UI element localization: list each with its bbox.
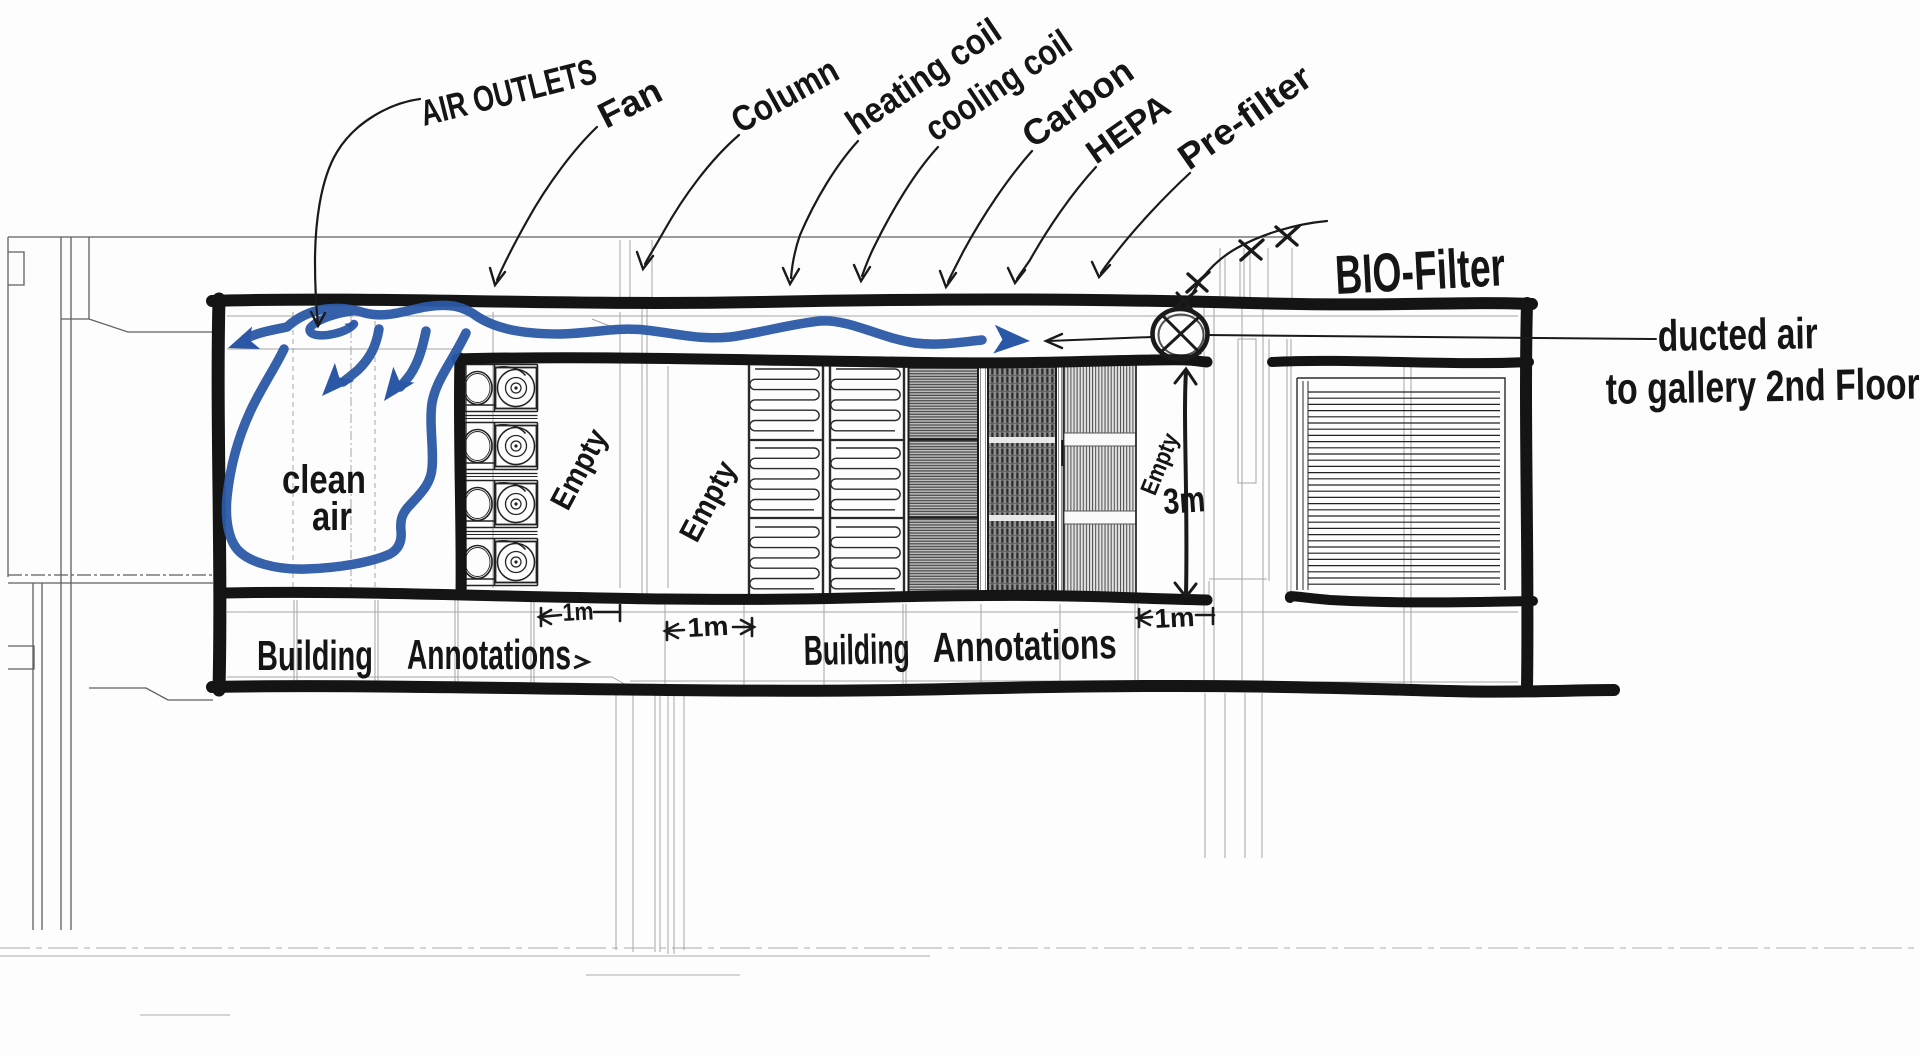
svg-text:1m: 1m: [687, 611, 730, 643]
svg-text:1m: 1m: [1154, 602, 1196, 634]
svg-text:Building: Building: [257, 632, 373, 679]
svg-text:BIO-Filter: BIO-Filter: [1334, 235, 1507, 306]
svg-text:Building: Building: [803, 625, 910, 674]
svg-text:1m: 1m: [562, 597, 594, 627]
svg-text:air: air: [312, 495, 352, 539]
svg-text:ducted air: ducted air: [1657, 309, 1818, 361]
svg-text:3m: 3m: [1162, 478, 1207, 522]
svg-text:Annotations: Annotations: [932, 620, 1117, 671]
svg-text:to gallery 2nd Floor: to gallery 2nd Floor: [1605, 360, 1920, 414]
svg-text:Annotations: Annotations: [407, 631, 571, 678]
